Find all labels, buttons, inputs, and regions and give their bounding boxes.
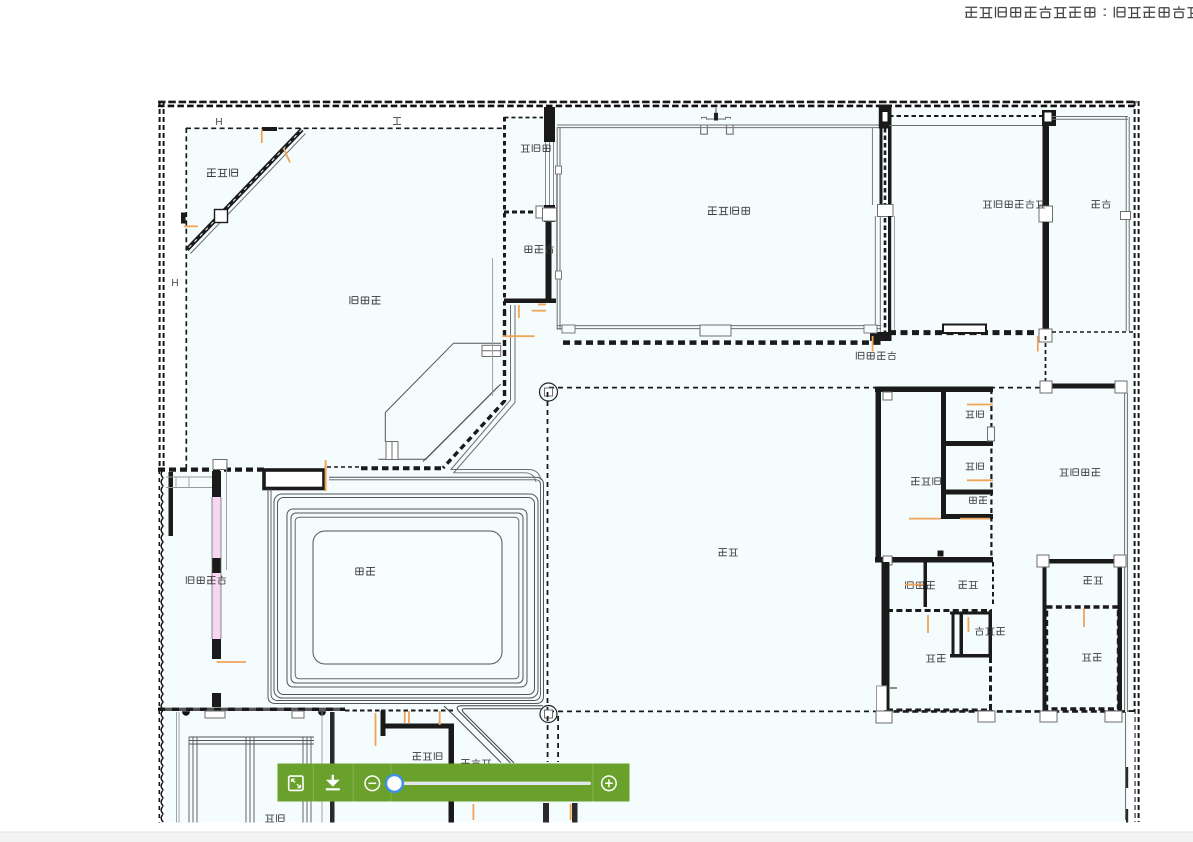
svg-text:H: H xyxy=(215,117,222,128)
svg-text:H: H xyxy=(171,278,178,289)
